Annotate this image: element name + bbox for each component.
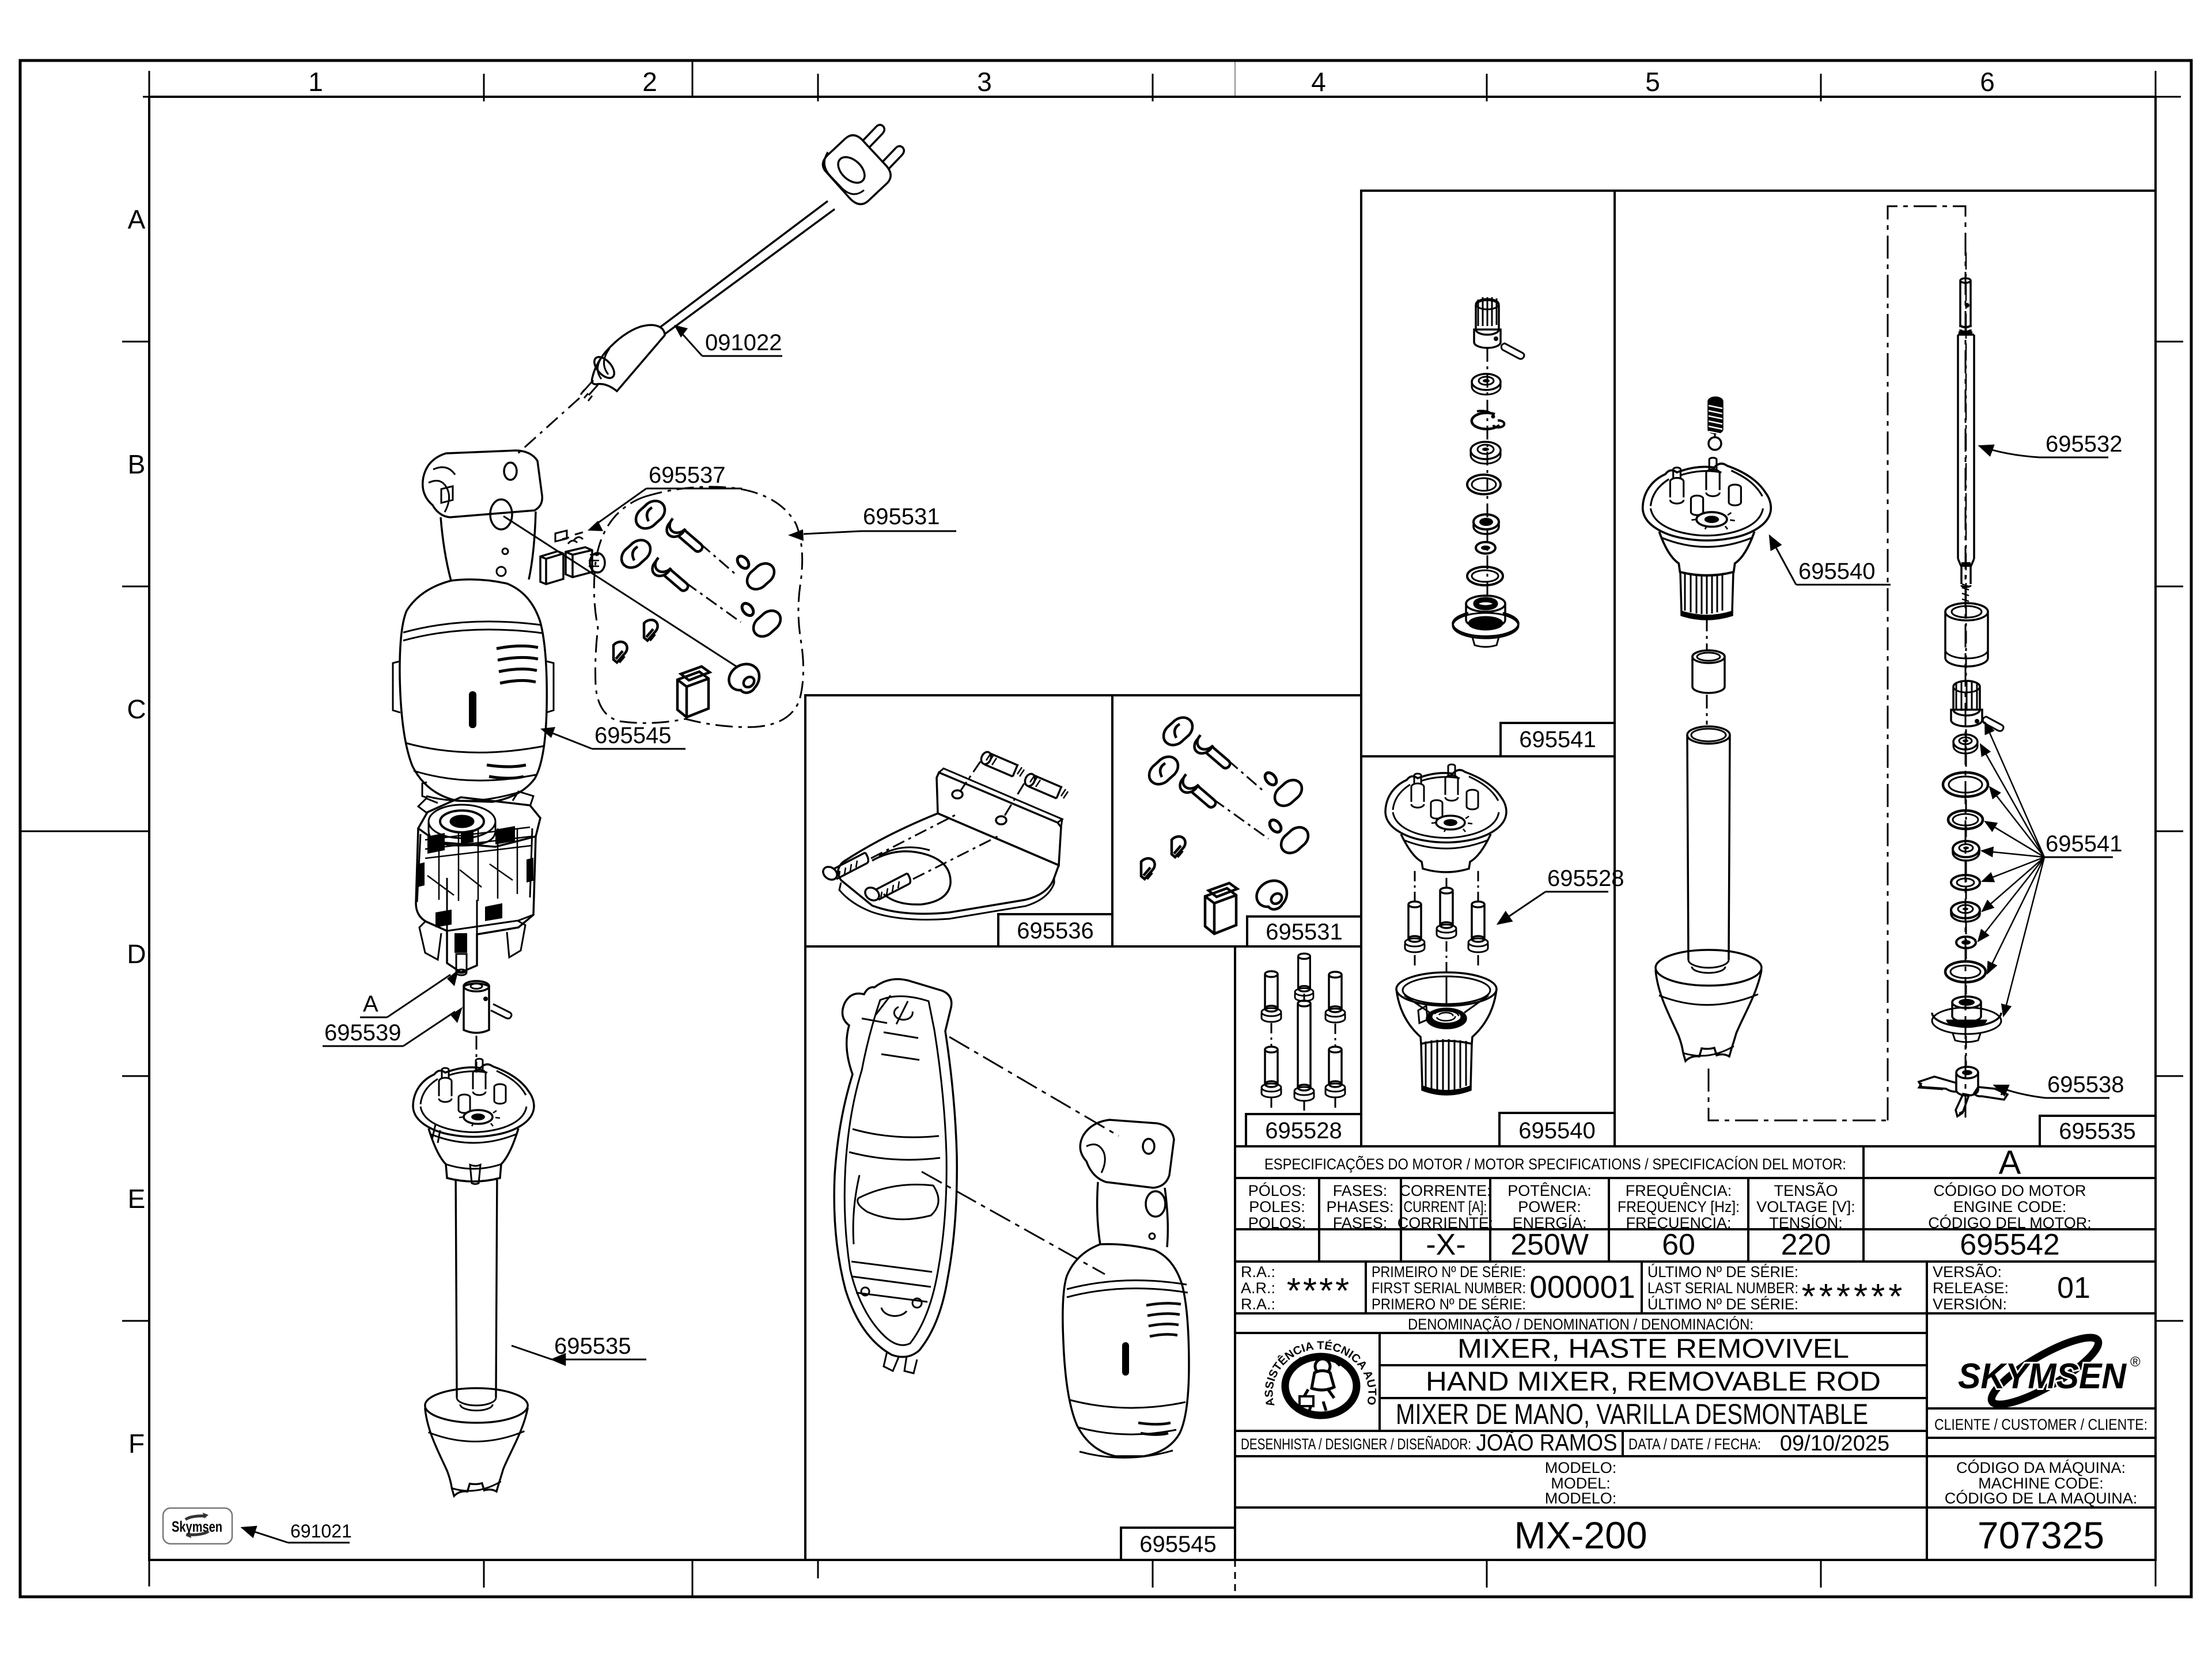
- svg-text:******: ******: [1802, 1277, 1906, 1317]
- svg-text:ÚLTIMO Nº DE SÉRIE:: ÚLTIMO Nº DE SÉRIE:: [1647, 1295, 1798, 1313]
- svg-text:3: 3: [977, 67, 992, 97]
- svg-text:B: B: [128, 449, 146, 479]
- svg-text:CÓDIGO DO MOTOR: CÓDIGO DO MOTOR: [1933, 1181, 2086, 1199]
- svg-text:695541: 695541: [1519, 727, 1596, 752]
- svg-text:PRIMERO Nº DE SÉRIE:: PRIMERO Nº DE SÉRIE:: [1372, 1296, 1526, 1313]
- svg-text:VOLTAGE [V]:: VOLTAGE [V]:: [1756, 1198, 1855, 1215]
- svg-text:695528: 695528: [1265, 1118, 1342, 1143]
- svg-text:695540: 695540: [1798, 559, 1875, 584]
- svg-text:000001: 000001: [1529, 1269, 1635, 1305]
- svg-text:707325: 707325: [1978, 1514, 2104, 1556]
- svg-text:2: 2: [642, 67, 657, 97]
- svg-text:695542: 695542: [1960, 1228, 2060, 1262]
- svg-text:ESPECIFICAÇÕES DO MOTOR / MOTO: ESPECIFICAÇÕES DO MOTOR / MOTOR SPECIFIC…: [1264, 1155, 1846, 1173]
- svg-text:695545: 695545: [1139, 1532, 1216, 1557]
- svg-text:VERSÃO:: VERSÃO:: [1933, 1263, 2002, 1281]
- svg-text:R.A.:: R.A.:: [1241, 1263, 1275, 1281]
- svg-text:FASES:: FASES:: [1333, 1214, 1388, 1232]
- svg-text:FREQUÊNCIA:: FREQUÊNCIA:: [1626, 1181, 1732, 1199]
- svg-text:FREQUENCY [Hz]:: FREQUENCY [Hz]:: [1618, 1198, 1740, 1215]
- svg-text:695536: 695536: [1017, 918, 1093, 944]
- svg-text:Skymsen: Skymsen: [172, 1518, 222, 1535]
- svg-text:60: 60: [1662, 1228, 1695, 1262]
- svg-text:JOÃO RAMOS: JOÃO RAMOS: [1476, 1429, 1618, 1456]
- svg-text:ENGINE CODE:: ENGINE CODE:: [1953, 1198, 2067, 1215]
- svg-text:695541: 695541: [2046, 831, 2122, 857]
- svg-text:DENOMINAÇÃO / DENOMINATION / D: DENOMINAÇÃO / DENOMINATION / DENOMINACIÓ…: [1408, 1315, 1753, 1333]
- svg-text:POTÊNCIA:: POTÊNCIA:: [1508, 1181, 1592, 1199]
- svg-text:695531: 695531: [1266, 919, 1342, 945]
- svg-text:FASES:: FASES:: [1333, 1182, 1388, 1199]
- svg-text:E: E: [128, 1184, 146, 1214]
- svg-text:C: C: [127, 694, 146, 724]
- svg-text:A: A: [1999, 1144, 2021, 1181]
- svg-text:POLOS:: POLOS:: [1248, 1214, 1306, 1232]
- svg-text:CÓDIGO DA MÁQUINA:: CÓDIGO DA MÁQUINA:: [1956, 1459, 2126, 1476]
- svg-text:PÓLOS:: PÓLOS:: [1248, 1181, 1306, 1199]
- svg-text:09/10/2025: 09/10/2025: [1780, 1431, 1889, 1456]
- svg-text:695538: 695538: [2047, 1072, 2124, 1097]
- svg-text:695537: 695537: [649, 463, 725, 488]
- svg-text:695545: 695545: [594, 723, 671, 748]
- svg-text:HAND MIXER, REMOVABLE ROD: HAND MIXER, REMOVABLE ROD: [1426, 1366, 1881, 1396]
- svg-text:CLIENTE / CUSTOMER / CLIENTE:: CLIENTE / CUSTOMER / CLIENTE:: [1934, 1416, 2147, 1433]
- svg-text:PHASES:: PHASES:: [1326, 1198, 1393, 1215]
- svg-text:POWER:: POWER:: [1518, 1198, 1581, 1215]
- svg-text:LAST SERIAL NUMBER:: LAST SERIAL NUMBER:: [1647, 1279, 1798, 1297]
- svg-text:RELEASE:: RELEASE:: [1933, 1279, 2009, 1297]
- svg-text:695535: 695535: [554, 1334, 631, 1359]
- svg-text:MODELO:: MODELO:: [1545, 1490, 1617, 1507]
- svg-text:01: 01: [2057, 1271, 2090, 1305]
- svg-text:691021: 691021: [290, 1521, 352, 1541]
- svg-text:R.A.:: R.A.:: [1241, 1296, 1275, 1313]
- svg-text:MX-200: MX-200: [1514, 1514, 1647, 1556]
- svg-text:-X-: -X-: [1426, 1228, 1465, 1262]
- svg-text:****: ****: [1287, 1271, 1352, 1311]
- svg-text:220: 220: [1781, 1228, 1831, 1262]
- svg-text:ÚLTIMO Nº DE SÉRIE:: ÚLTIMO Nº DE SÉRIE:: [1647, 1263, 1798, 1281]
- svg-text:FIRST SERIAL NUMBER:: FIRST SERIAL NUMBER:: [1372, 1279, 1526, 1297]
- svg-text:MODELO:: MODELO:: [1545, 1459, 1617, 1476]
- svg-text:F: F: [128, 1429, 145, 1459]
- svg-text:6: 6: [1980, 67, 1995, 97]
- svg-text:A: A: [363, 991, 378, 1017]
- svg-text:CURRENT [A]:: CURRENT [A]:: [1404, 1198, 1487, 1215]
- svg-text:SKYMSEN: SKYMSEN: [1958, 1357, 2127, 1396]
- svg-text:CORRENTE:: CORRENTE:: [1399, 1182, 1491, 1199]
- svg-text:695535: 695535: [2059, 1119, 2135, 1144]
- svg-text:1: 1: [308, 67, 323, 97]
- svg-text:250W: 250W: [1510, 1228, 1589, 1262]
- svg-text:695540: 695540: [1518, 1118, 1595, 1143]
- svg-text:A: A: [128, 204, 146, 234]
- svg-text:POLES:: POLES:: [1249, 1198, 1305, 1215]
- svg-text:5: 5: [1645, 67, 1660, 97]
- svg-text:CÓDIGO DE LA MAQUINA:: CÓDIGO DE LA MAQUINA:: [1945, 1489, 2138, 1507]
- svg-text:TENSÃO: TENSÃO: [1774, 1181, 1838, 1199]
- svg-text:A.R.:: A.R.:: [1241, 1279, 1275, 1297]
- svg-text:VERSIÓN:: VERSIÓN:: [1933, 1295, 2007, 1313]
- svg-text:®: ®: [2130, 1354, 2141, 1370]
- svg-text:D: D: [127, 939, 146, 969]
- svg-text:MIXER, HASTE REMOVIVEL: MIXER, HASTE REMOVIVEL: [1457, 1333, 1849, 1363]
- svg-text:695532: 695532: [2046, 431, 2122, 457]
- svg-text:695539: 695539: [324, 1020, 401, 1046]
- svg-text:4: 4: [1311, 67, 1326, 97]
- svg-text:091022: 091022: [705, 330, 782, 355]
- svg-text:MIXER DE MANO, VARILLA DESMONT: MIXER DE MANO, VARILLA DESMONTABLE: [1396, 1398, 1868, 1430]
- svg-text:PRIMEIRO Nº DE SÉRIE:: PRIMEIRO Nº DE SÉRIE:: [1372, 1263, 1526, 1281]
- svg-text:DESENHISTA / DESIGNER / DISEÑA: DESENHISTA / DESIGNER / DISEÑADOR:: [1241, 1435, 1471, 1453]
- svg-text:DATA / DATE / FECHA:: DATA / DATE / FECHA:: [1628, 1435, 1761, 1453]
- svg-text:695528: 695528: [1547, 866, 1624, 891]
- svg-text:695531: 695531: [863, 504, 940, 529]
